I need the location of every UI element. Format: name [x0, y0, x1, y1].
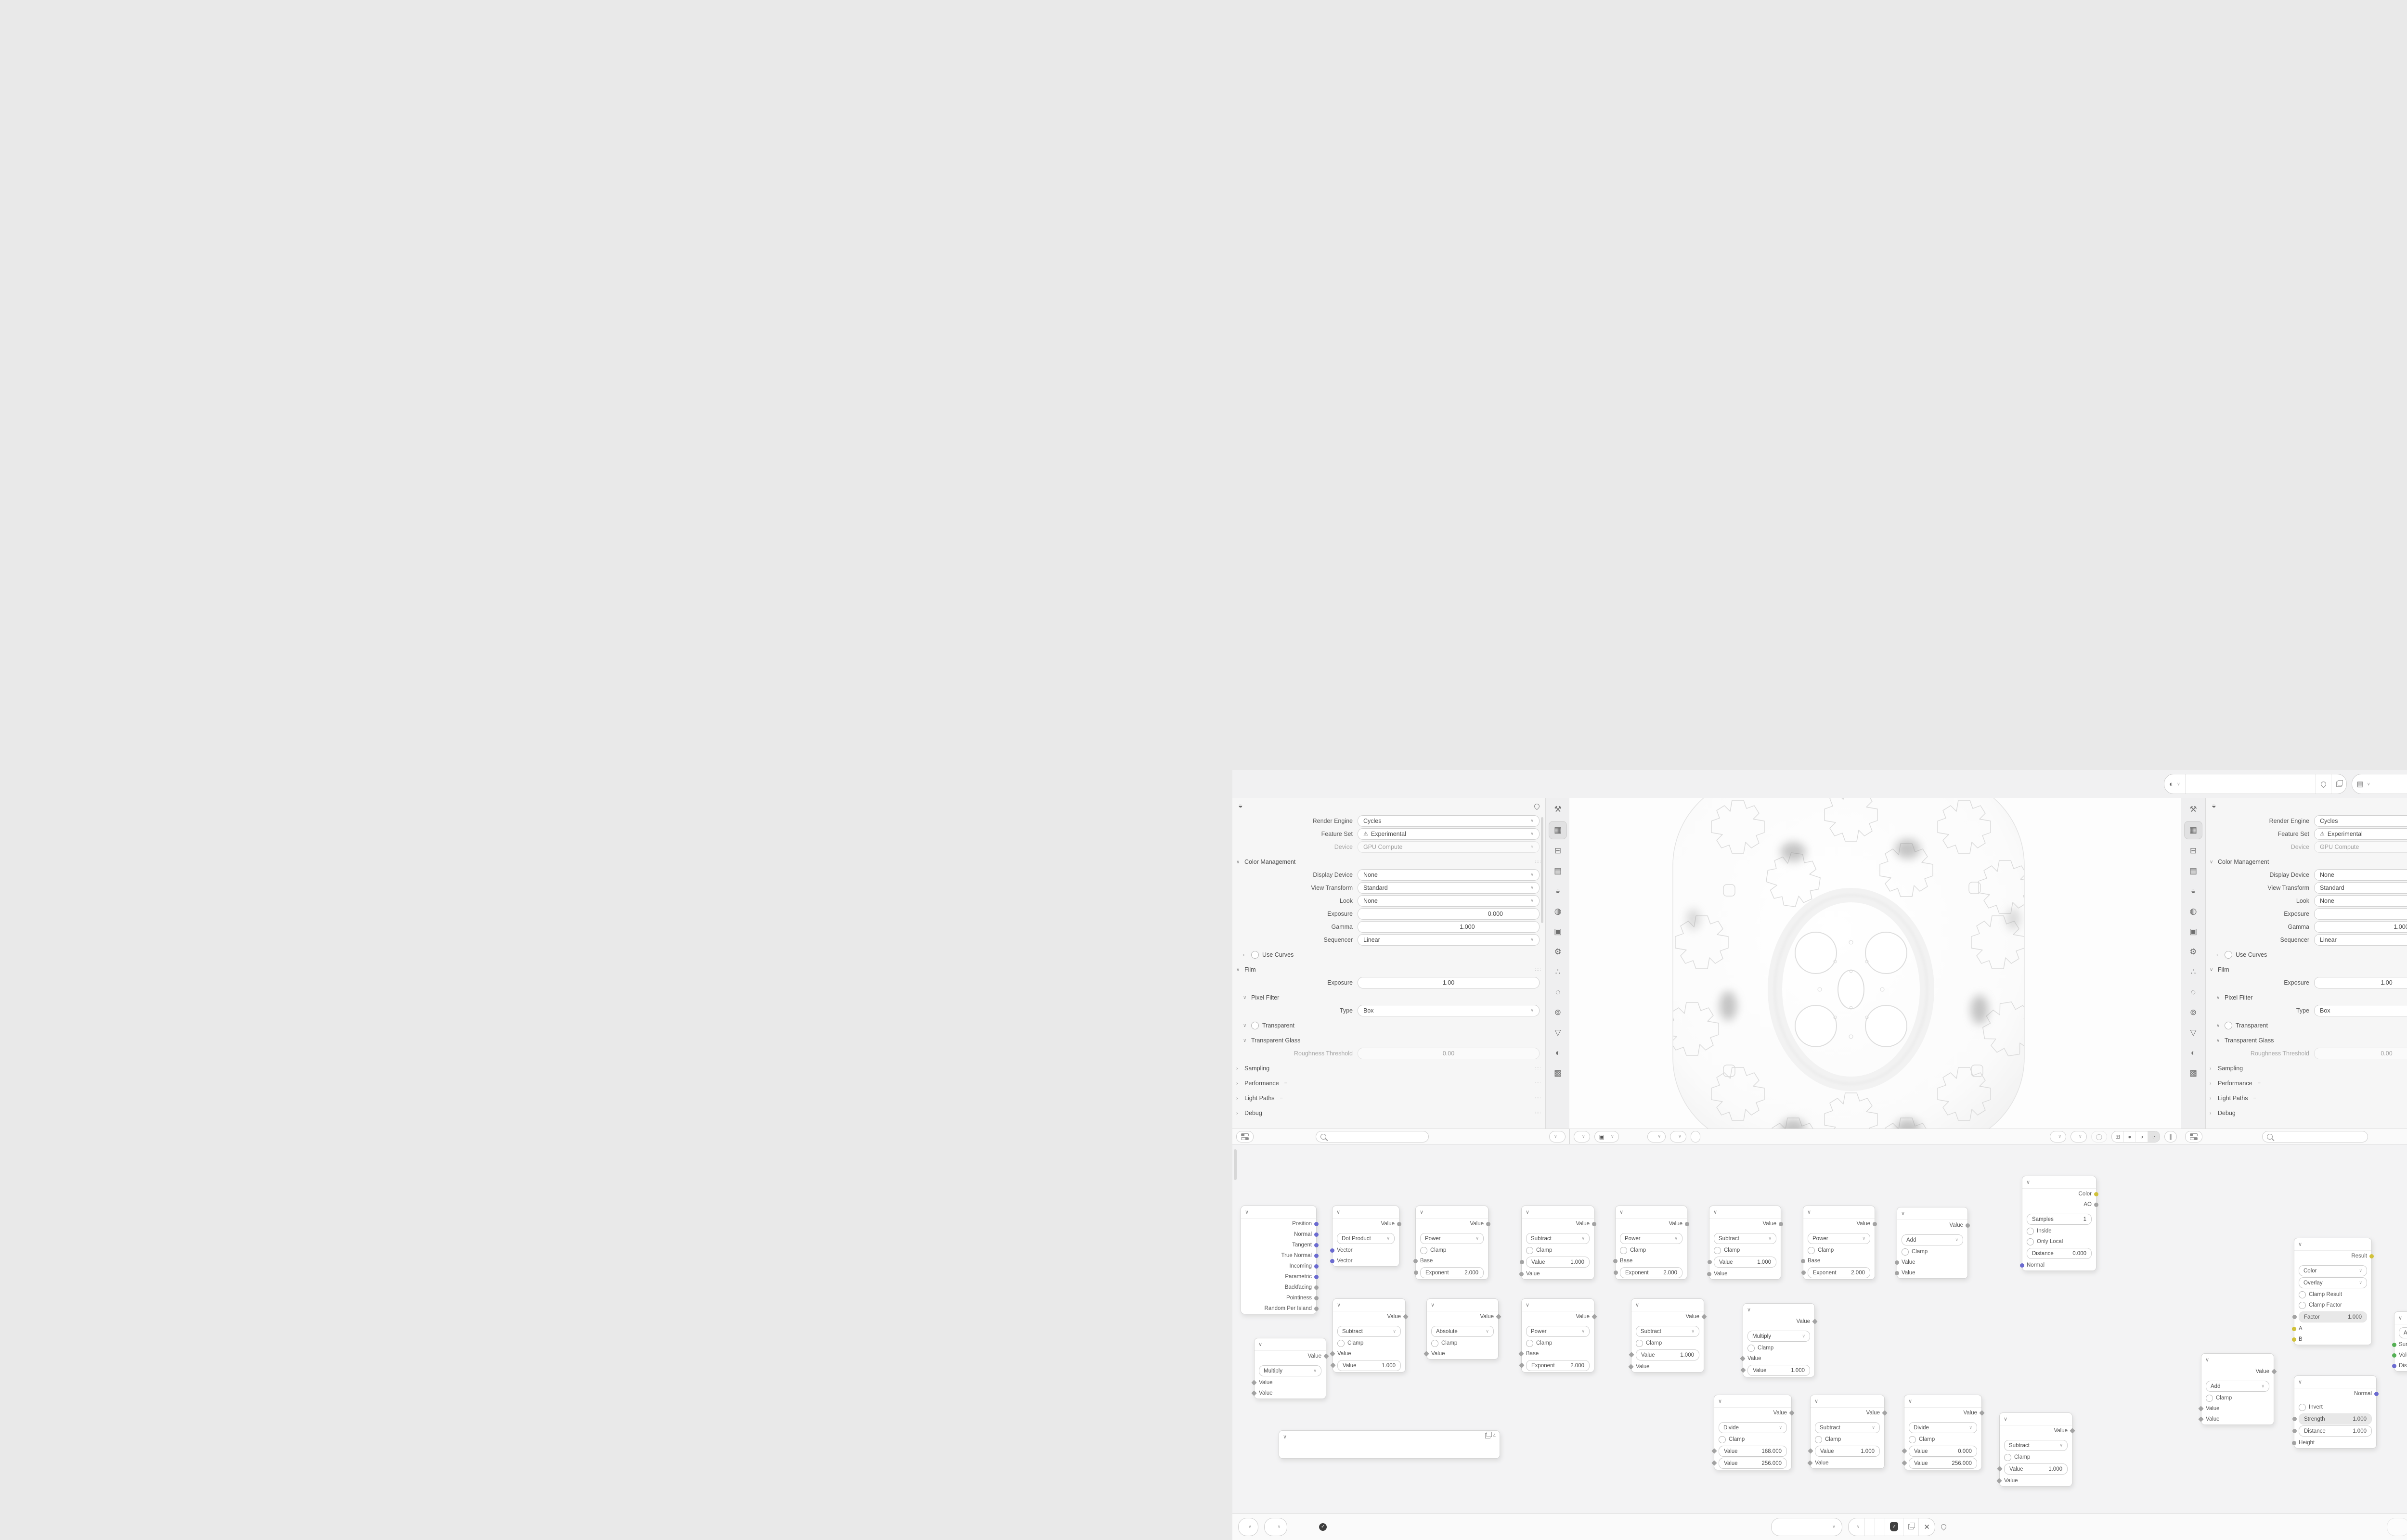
- tab-tool-icon[interactable]: ⚒: [2185, 801, 2202, 818]
- node-enum-subtract[interactable]: Subtract∨: [1526, 1233, 1590, 1244]
- socket[interactable]: [1801, 1259, 1805, 1263]
- panel-header-light-paths[interactable]: ›Light Paths≡∷∷: [1232, 1092, 1545, 1104]
- image-name-field[interactable]: [2375, 774, 2407, 794]
- socket[interactable]: [1314, 1254, 1319, 1258]
- shading-mode-2[interactable]: ◑: [2136, 1131, 2148, 1142]
- prop-row-look: LookNone∨: [2206, 894, 2407, 907]
- node-checkbox-clamp[interactable]: Clamp: [1811, 1434, 1884, 1445]
- node-enum-subtract[interactable]: Subtract∨: [1337, 1326, 1401, 1337]
- node[interactable]: ∨ValueSubtract∨ClampValue1.000Value: [1999, 1412, 2072, 1487]
- socket[interactable]: [2198, 1406, 2203, 1411]
- input-socket[interactable]: [2292, 1315, 2297, 1319]
- input-socket[interactable]: [1414, 1270, 1418, 1275]
- value-field[interactable]: 1.000: [2314, 921, 2407, 933]
- input-socket[interactable]: [1614, 1270, 1618, 1275]
- node-enum-add[interactable]: Add∨: [2206, 1381, 2269, 1392]
- tab-world-icon[interactable]: ◍: [2185, 903, 2202, 920]
- output-value: Value: [1416, 1219, 1488, 1229]
- node[interactable]: ∨ValueSubtract∨ClampValue1.000Value: [1631, 1298, 1704, 1373]
- input-vector: Vector: [1333, 1245, 1399, 1256]
- select-view-transform[interactable]: Standard∨: [1358, 882, 1540, 894]
- panel-header-film[interactable]: ∨Film∷∷: [1232, 963, 1545, 976]
- filter-icon[interactable]: [1236, 1131, 1254, 1142]
- socket[interactable]: [1519, 1272, 1524, 1276]
- snap-target-dropdown[interactable]: ∨: [1670, 1131, 1686, 1142]
- socket[interactable]: [2198, 1416, 2203, 1422]
- panel-header-transparent-glass[interactable]: ∨Transparent Glass: [2206, 1034, 2407, 1047]
- shading-mode-group[interactable]: ⊞●◑◔: [2111, 1131, 2160, 1142]
- material-datablock[interactable]: ∨ ✓ ✕: [1848, 1518, 1935, 1536]
- tab-data-icon[interactable]: ▽: [2185, 1024, 2202, 1041]
- node-enum-multiply[interactable]: Multiply∨: [1747, 1331, 1810, 1342]
- select-type[interactable]: Box∨: [2314, 1005, 2407, 1016]
- socket[interactable]: [1251, 1380, 1256, 1385]
- node[interactable]: ∨ValueMultiply∨ValueValue: [1254, 1338, 1326, 1399]
- socket[interactable]: [1251, 1390, 1256, 1396]
- node-enum-subtract[interactable]: Subtract∨: [1714, 1233, 1776, 1244]
- socket[interactable]: [1807, 1460, 1812, 1465]
- node-checkbox-clamp[interactable]: Clamp: [2000, 1452, 2072, 1463]
- node-field-value[interactable]: Value256.000: [1909, 1458, 1977, 1469]
- node-checkbox-invert[interactable]: Invert: [2294, 1402, 2376, 1412]
- mode-dropdown[interactable]: ▣∨: [1594, 1131, 1619, 1142]
- socket[interactable]: [1314, 1232, 1319, 1237]
- node-field-factor[interactable]: Factor1.000: [2299, 1311, 2367, 1322]
- socket[interactable]: [1423, 1351, 1429, 1356]
- value-field[interactable]: 1.000: [1358, 921, 1540, 933]
- tab-scene-icon[interactable]: ◒: [1549, 883, 1566, 900]
- socket[interactable]: [1779, 1222, 1783, 1226]
- pin-icon[interactable]: [1533, 802, 1541, 810]
- copy-icon[interactable]: [2331, 774, 2346, 794]
- node-field-exponent[interactable]: Exponent2.000: [1420, 1267, 1484, 1278]
- select-view-transform[interactable]: Standard∨: [2314, 882, 2407, 894]
- node-enum-power[interactable]: Power∨: [1620, 1233, 1682, 1244]
- output-value: Value: [1333, 1311, 1405, 1322]
- use-nodes-checkbox[interactable]: ✓: [1319, 1523, 1327, 1531]
- copy-icon[interactable]: [1903, 1518, 1919, 1536]
- socket[interactable]: [2369, 1254, 2374, 1258]
- input-value: Value: [1811, 1458, 1884, 1468]
- node-checkbox-clamp[interactable]: Clamp: [1897, 1246, 1967, 1257]
- socket[interactable]: [2374, 1392, 2379, 1396]
- node-checkbox-clamp[interactable]: Clamp: [2201, 1393, 2274, 1403]
- filter-icon[interactable]: [2185, 1131, 2202, 1142]
- panel-header-pixel-filter[interactable]: ∨Pixel Filter: [1232, 991, 1545, 1004]
- value-field[interactable]: 0.00: [1358, 1048, 1540, 1059]
- socket[interactable]: [1707, 1272, 1711, 1276]
- socket[interactable]: [1592, 1222, 1596, 1226]
- node[interactable]: ∨4: [1279, 1430, 1500, 1459]
- tab-render-icon[interactable]: ▦: [2184, 821, 2202, 839]
- tab-tool-icon[interactable]: ⚒: [1549, 801, 1566, 818]
- input-socket[interactable]: [1711, 1448, 1717, 1453]
- node-checkbox-clamp[interactable]: Clamp: [1803, 1245, 1875, 1256]
- select-feature-set[interactable]: ⚠Experimental∨: [1358, 828, 1540, 840]
- socket[interactable]: [1895, 1260, 1899, 1265]
- node-checkbox-clamp[interactable]: Clamp: [1743, 1343, 1814, 1353]
- node[interactable]: ∨ValueSubtract∨ClampValue1.000Value: [1810, 1395, 1885, 1469]
- node[interactable]: ∨ValueAdd∨ClampValueValue: [2201, 1353, 2274, 1425]
- socket[interactable]: [1314, 1307, 1319, 1311]
- image-datablock-selector[interactable]: ▤∨: [2352, 774, 2407, 794]
- node[interactable]: ∨All∨SurfaceVolumeDisplacement: [2394, 1311, 2407, 1372]
- slot-dropdown[interactable]: ∨: [1771, 1518, 1842, 1536]
- tab-view-layer-icon[interactable]: ▤: [2185, 862, 2202, 880]
- input-socket[interactable]: [1520, 1260, 1524, 1264]
- panel-header-transparent-glass[interactable]: ∨Transparent Glass: [1232, 1034, 1545, 1047]
- select-device[interactable]: GPU Compute∨: [2314, 841, 2407, 853]
- node-checkbox-only-local[interactable]: Only Local: [2022, 1236, 2096, 1247]
- node-field-value[interactable]: Value1.000: [1815, 1446, 1880, 1457]
- falloff-dropdown[interactable]: ∨: [1574, 1131, 1590, 1142]
- node-field-distance[interactable]: Distance1.000: [2299, 1425, 2372, 1437]
- node-field-value[interactable]: Value0.000: [1909, 1446, 1977, 1457]
- node-field-value[interactable]: Value1.000: [1636, 1349, 1699, 1360]
- value-field[interactable]: 0.000: [1358, 908, 1540, 920]
- select-render-engine[interactable]: Cycles∨: [1358, 815, 1540, 827]
- node[interactable]: ∨NormalInvertStrength1.000Distance1.000H…: [2294, 1375, 2377, 1449]
- socket[interactable]: [2392, 1343, 2396, 1347]
- socket[interactable]: [1314, 1264, 1319, 1269]
- node[interactable]: ∨ValueAdd∨ClampValueValue: [1897, 1207, 1968, 1279]
- panel-header-debug[interactable]: ›Debug∷∷: [1232, 1107, 1545, 1119]
- socket[interactable]: [1314, 1222, 1319, 1226]
- tab-object-icon[interactable]: ▣: [1549, 923, 1566, 940]
- tab-constraints-icon[interactable]: ⊚: [2185, 1004, 2202, 1021]
- shader-node-editor[interactable]: ∨PositionNormalTangentTrue NormalIncomin…: [1232, 1144, 2407, 1513]
- panel-header-performance[interactable]: ›Performance≡∷∷: [2206, 1077, 2407, 1090]
- socket[interactable]: [2292, 1441, 2296, 1445]
- socket[interactable]: [1330, 1351, 1335, 1356]
- node-enum-divide[interactable]: Divide∨: [1909, 1422, 1977, 1433]
- panel-header-debug[interactable]: ›Debug∷∷: [2206, 1107, 2407, 1119]
- node-field-strength[interactable]: Strength1.000: [2299, 1413, 2372, 1424]
- shading-mode-3[interactable]: ◔: [2148, 1131, 2160, 1142]
- users-count[interactable]: [1875, 1518, 1885, 1536]
- panel-toggle[interactable]: [1251, 1022, 1259, 1029]
- prop-row-device: DeviceGPU Compute∨: [2206, 840, 2407, 853]
- node-checkbox-clamp[interactable]: Clamp: [1714, 1434, 1791, 1445]
- xray-toggle[interactable]: ◯: [2091, 1131, 2107, 1142]
- blender-window: ◐∨ ▤∨ ◒: [1232, 770, 2407, 1540]
- node[interactable]: ∨ValueDot Product∨VectorVector: [1332, 1206, 1399, 1267]
- panel-header-color-management[interactable]: ∨Color Management∷∷: [2206, 856, 2407, 868]
- input-socket[interactable]: [1519, 1362, 1524, 1368]
- panel-toggle[interactable]: [1251, 951, 1259, 959]
- node-enum-power[interactable]: Power∨: [1420, 1233, 1484, 1244]
- socket[interactable]: [1518, 1351, 1524, 1356]
- node-field-value[interactable]: Value1.000: [2004, 1463, 2068, 1475]
- select-feature-set[interactable]: ⚠Experimental∨: [2314, 828, 2407, 840]
- node-checkbox-clamp[interactable]: Clamp: [1522, 1338, 1594, 1348]
- tab-modifiers-icon[interactable]: ⚙: [2185, 943, 2202, 961]
- input-socket[interactable]: [2292, 1429, 2297, 1433]
- shader-type-dropdown[interactable]: ∨: [1264, 1518, 1288, 1536]
- tab-output-icon[interactable]: ⊟: [1549, 842, 1566, 860]
- socket[interactable]: [1701, 1314, 1707, 1319]
- select-display-device[interactable]: None∨: [1358, 869, 1540, 881]
- node-field-value[interactable]: Value1.000: [1747, 1365, 1810, 1376]
- select-look[interactable]: None∨: [1358, 895, 1540, 907]
- tab-texture-icon[interactable]: ▩: [1549, 1065, 1566, 1082]
- select-sequencer[interactable]: Linear∨: [2314, 934, 2407, 946]
- node-field-value[interactable]: Value1.000: [1714, 1257, 1776, 1268]
- tab-scene-icon[interactable]: ◒: [2185, 883, 2202, 900]
- orientation-dropdown[interactable]: ∨: [1647, 1131, 1666, 1142]
- value-field[interactable]: 0.000: [2314, 908, 2407, 920]
- socket[interactable]: [1996, 1478, 2002, 1483]
- node-field-exponent[interactable]: Exponent2.000: [1526, 1360, 1590, 1371]
- select-display-device[interactable]: None∨: [2314, 869, 2407, 881]
- tab-particles-icon[interactable]: ∴: [1549, 963, 1566, 981]
- socket[interactable]: [2392, 1364, 2396, 1368]
- socket[interactable]: [2070, 1428, 2075, 1433]
- socket[interactable]: [2094, 1192, 2098, 1196]
- socket[interactable]: [1314, 1275, 1319, 1279]
- output-tangent: Tangent: [1241, 1240, 1316, 1250]
- node-enum-power[interactable]: Power∨: [1526, 1326, 1590, 1337]
- input-value: Value: [1897, 1268, 1967, 1278]
- socket[interactable]: [1496, 1314, 1501, 1319]
- socket[interactable]: [1979, 1410, 1984, 1415]
- socket[interactable]: [1323, 1353, 1329, 1359]
- socket[interactable]: [1882, 1410, 1887, 1415]
- input-socket[interactable]: [2292, 1417, 2297, 1421]
- node-enum-power[interactable]: Power∨: [1808, 1233, 1870, 1244]
- tab-material-icon[interactable]: ◐: [2185, 1044, 2202, 1062]
- scrollbar[interactable]: [1541, 817, 1543, 923]
- pin-icon[interactable]: [2316, 774, 2331, 794]
- properties-editor-a: ◒ Render EngineCycles∨Feature Set⚠Experi…: [1232, 798, 1545, 1129]
- select-device[interactable]: GPU Compute∨: [1358, 841, 1540, 853]
- input-socket[interactable]: [1801, 1270, 1806, 1275]
- socket[interactable]: [2020, 1263, 2024, 1268]
- input-value: Value: [1255, 1377, 1326, 1388]
- panel-header-film[interactable]: ∨Film∷∷: [2206, 963, 2407, 976]
- socket[interactable]: [1789, 1410, 1794, 1415]
- input-socket[interactable]: [1808, 1448, 1813, 1453]
- socket[interactable]: [1740, 1356, 1745, 1361]
- input-socket[interactable]: [1902, 1448, 1907, 1453]
- tab-output-icon[interactable]: ⊟: [2185, 842, 2202, 860]
- panel-header-use-curves[interactable]: ›Use Curves: [2206, 949, 2407, 961]
- socket[interactable]: [1314, 1296, 1319, 1300]
- socket[interactable]: [2271, 1369, 2277, 1374]
- input-socket[interactable]: [1708, 1260, 1712, 1264]
- quadrant-top-right: [1232, 0, 2407, 770]
- socket[interactable]: [1330, 1248, 1334, 1253]
- node-field-value[interactable]: Value168.000: [1719, 1446, 1787, 1457]
- properties-tabstrip-b: ⚒▦⊟▤◒◍▣⚙∴◌⊚▽◐▩: [2181, 798, 2206, 1129]
- input-socket[interactable]: [1330, 1362, 1335, 1368]
- scrollbar[interactable]: [1234, 1149, 1237, 1180]
- node-field-samples[interactable]: Samples1: [2027, 1214, 2092, 1225]
- socket[interactable]: [2094, 1203, 2098, 1207]
- node[interactable]: ∨ValueSubtract∨ClampValue1.000Value: [1709, 1206, 1781, 1280]
- node[interactable]: ∨ValueAbsolute∨ClampValue: [1426, 1298, 1499, 1360]
- value-field[interactable]: 1.00: [2314, 977, 2407, 988]
- editor-type-dropdown[interactable]: ∨: [1238, 1518, 1258, 1536]
- tab-material-icon[interactable]: ◐: [1549, 1044, 1566, 1062]
- properties-header-b: ∨: [2181, 1129, 2407, 1144]
- tab-render-icon[interactable]: ▦: [1549, 821, 1567, 839]
- snap-indicator[interactable]: [2387, 1518, 2407, 1536]
- node-checkbox-clamp[interactable]: Clamp: [1616, 1245, 1687, 1256]
- node-enum-subtract[interactable]: Subtract∨: [1815, 1422, 1880, 1433]
- shading-options[interactable]: ∥: [2164, 1131, 2177, 1142]
- node-enum-color[interactable]: Color∨: [2299, 1265, 2367, 1276]
- fake-user-shield-icon[interactable]: ✓: [1885, 1518, 1903, 1536]
- unlink-icon[interactable]: ✕: [1919, 1518, 1935, 1536]
- node[interactable]: ∨ValueDivide∨ClampValue0.000Value256.000: [1904, 1395, 1982, 1470]
- node-enum-all[interactable]: All∨: [2399, 1327, 2407, 1338]
- select-look[interactable]: None∨: [2314, 895, 2407, 907]
- node-enum-subtract[interactable]: Subtract∨: [2004, 1440, 2068, 1451]
- socket[interactable]: [1613, 1259, 1618, 1263]
- panel-header-light-paths[interactable]: ›Light Paths≡∷∷: [2206, 1092, 2407, 1104]
- node-enum-add[interactable]: Add∨: [1902, 1234, 1963, 1245]
- shading-mode-0[interactable]: ⊞: [2112, 1131, 2124, 1142]
- prop-row-exposure: Exposure0.000: [1232, 907, 1545, 920]
- shading-mode-1[interactable]: ●: [2124, 1131, 2136, 1142]
- socket[interactable]: [1873, 1222, 1877, 1226]
- material-datablock-selector[interactable]: ◐∨: [2164, 774, 2347, 794]
- node-field-value[interactable]: Value1.000: [1337, 1360, 1401, 1371]
- gizmo-dropdown[interactable]: ∨: [2050, 1131, 2066, 1142]
- node[interactable]: ∨ValuePower∨ClampBaseExponent2.000: [1803, 1206, 1875, 1280]
- node[interactable]: ∨ValuePower∨ClampBaseExponent2.000: [1615, 1206, 1687, 1280]
- properties-editor-b: ◒ Render EngineCycles∨Feature Set⚠Experi…: [2206, 798, 2407, 1129]
- socket[interactable]: [2292, 1337, 2296, 1342]
- node[interactable]: ∨ValueDivide∨ClampValue168.000Value256.0…: [1714, 1395, 1792, 1470]
- socket[interactable]: [1330, 1259, 1334, 1263]
- value-field[interactable]: 0.00: [2314, 1048, 2407, 1059]
- output-value: Value: [1811, 1408, 1884, 1418]
- node[interactable]: ∨ValueSubtract∨ClampValue1.000Value: [1521, 1206, 1594, 1280]
- input-socket[interactable]: [1902, 1460, 1907, 1465]
- select-type[interactable]: Box∨: [1358, 1005, 1540, 1016]
- node-checkbox-clamp[interactable]: Clamp: [1522, 1245, 1594, 1256]
- panel-toggle[interactable]: [2225, 1022, 2232, 1029]
- node-checkbox-inside[interactable]: Inside: [2022, 1226, 2096, 1236]
- input-socket[interactable]: [1997, 1466, 2002, 1471]
- socket[interactable]: [1812, 1319, 1817, 1324]
- node[interactable]: ∨PositionNormalTangentTrue NormalIncomin…: [1241, 1206, 1317, 1314]
- prop-row-exposure: Exposure1.00: [2206, 976, 2407, 989]
- node-checkbox-clamp[interactable]: Clamp: [1631, 1338, 1704, 1348]
- panel-header-pixel-filter[interactable]: ∨Pixel Filter: [2206, 991, 2407, 1004]
- panel-header-color-management[interactable]: ∨Color Management∷∷: [1232, 856, 1545, 868]
- node-enum-divide[interactable]: Divide∨: [1719, 1422, 1787, 1433]
- panel-header-transparent[interactable]: ∨Transparent: [1232, 1019, 1545, 1032]
- socket[interactable]: [1413, 1259, 1418, 1263]
- input-socket[interactable]: [1740, 1367, 1746, 1373]
- tab-physics-icon[interactable]: ◌: [2185, 984, 2202, 1001]
- input-a: A: [2294, 1323, 2371, 1334]
- magnet-icon[interactable]: [1691, 1131, 1700, 1142]
- node[interactable]: ∨ValueMultiply∨ClampValueValue1.000: [1743, 1303, 1815, 1377]
- socket[interactable]: [1592, 1314, 1597, 1319]
- node-checkbox-clamp[interactable]: Clamp: [1709, 1245, 1781, 1256]
- node-field-value[interactable]: Value256.000: [1719, 1458, 1787, 1469]
- search-input[interactable]: [2262, 1131, 2368, 1142]
- panel-header-sampling[interactable]: ›Sampling∷∷: [2206, 1062, 2407, 1075]
- value-field[interactable]: 1.00: [1358, 977, 1540, 988]
- tab-physics-icon[interactable]: ◌: [1549, 984, 1566, 1001]
- node-checkbox-clamp[interactable]: Clamp: [1904, 1434, 1981, 1445]
- viewport-3d[interactable]: [1569, 798, 2181, 1129]
- tab-world-icon[interactable]: ◍: [1549, 903, 1566, 920]
- node[interactable]: ∨ColorAOSamples1InsideOnly LocalDistance…: [2022, 1176, 2096, 1271]
- node-enum-multiply[interactable]: Multiply∨: [1259, 1365, 1321, 1376]
- material-name-field[interactable]: [2186, 774, 2316, 794]
- node-checkbox-clamp[interactable]: Clamp: [1333, 1338, 1405, 1348]
- select-sequencer[interactable]: Linear∨: [1358, 934, 1540, 946]
- node-field-value[interactable]: Value1.000: [1526, 1257, 1590, 1268]
- panel-header-sampling[interactable]: ›Sampling∷∷: [1232, 1062, 1545, 1075]
- socket[interactable]: [1314, 1285, 1319, 1290]
- tab-texture-icon[interactable]: ▩: [2185, 1065, 2202, 1082]
- node[interactable]: ∨ValueSubtract∨ClampValueValue1.000: [1333, 1298, 1406, 1373]
- node-enum-dot-product[interactable]: Dot Product∨: [1337, 1233, 1395, 1244]
- node-enum-absolute[interactable]: Absolute∨: [1431, 1326, 1494, 1337]
- panel-toggle[interactable]: [2225, 951, 2232, 959]
- node-enum-subtract[interactable]: Subtract∨: [1636, 1326, 1699, 1337]
- socket[interactable]: [1397, 1222, 1401, 1226]
- socket[interactable]: [1403, 1314, 1408, 1319]
- output-value: Value: [1522, 1219, 1594, 1229]
- input-socket[interactable]: [1629, 1352, 1634, 1357]
- panel-header-use-curves[interactable]: ›Use Curves: [1232, 949, 1545, 961]
- panel-header-transparent[interactable]: ∨Transparent: [2206, 1019, 2407, 1032]
- socket[interactable]: [1314, 1243, 1319, 1247]
- socket[interactable]: [1486, 1222, 1490, 1226]
- socket[interactable]: [1685, 1222, 1689, 1226]
- socket[interactable]: [2392, 1353, 2396, 1358]
- tab-object-icon[interactable]: ▣: [2185, 923, 2202, 940]
- socket[interactable]: [1628, 1364, 1633, 1369]
- node-enum-overlay[interactable]: Overlay∨: [2299, 1277, 2367, 1288]
- tab-view-layer-icon[interactable]: ▤: [1549, 862, 1566, 880]
- node-field-exponent[interactable]: Exponent2.000: [1808, 1267, 1870, 1278]
- search-input[interactable]: [1316, 1131, 1429, 1142]
- tab-particles-icon[interactable]: ∴: [2185, 963, 2202, 981]
- panel-header-performance[interactable]: ›Performance≡∷∷: [1232, 1077, 1545, 1090]
- input-value: Value: [1631, 1361, 1704, 1372]
- node[interactable]: ∨ValuePower∨ClampBaseExponent2.000: [1415, 1206, 1488, 1280]
- tab-data-icon[interactable]: ▽: [1549, 1024, 1566, 1041]
- node-field-exponent[interactable]: Exponent2.000: [1620, 1267, 1682, 1278]
- node-field-distance[interactable]: Distance0.000: [2027, 1248, 2092, 1259]
- input-socket[interactable]: [1711, 1460, 1717, 1465]
- node-checkbox-clamp[interactable]: Clamp: [1416, 1245, 1488, 1256]
- node-checkbox-clamp[interactable]: Clamp: [1427, 1338, 1498, 1348]
- pin-icon[interactable]: [1940, 1523, 1948, 1531]
- node-checkbox-clamp-factor[interactable]: Clamp Factor: [2294, 1300, 2371, 1310]
- select-render-engine[interactable]: Cycles∨: [2314, 815, 2407, 827]
- options-dropdown[interactable]: ∨: [1549, 1131, 1566, 1142]
- node[interactable]: ∨ValuePower∨ClampBaseExponent2.000: [1521, 1298, 1594, 1373]
- socket[interactable]: [2292, 1327, 2296, 1331]
- tab-constraints-icon[interactable]: ⊚: [1549, 1004, 1566, 1021]
- tab-modifiers-icon[interactable]: ⚙: [1549, 943, 1566, 961]
- socket[interactable]: [1966, 1223, 1970, 1228]
- socket[interactable]: [1895, 1271, 1899, 1275]
- node-checkbox-clamp-result[interactable]: Clamp Result: [2294, 1289, 2371, 1300]
- node[interactable]: ∨ResultColor∨Overlay∨Clamp ResultClamp F…: [2294, 1238, 2372, 1345]
- overlays-dropdown[interactable]: ∨: [2071, 1131, 2087, 1142]
